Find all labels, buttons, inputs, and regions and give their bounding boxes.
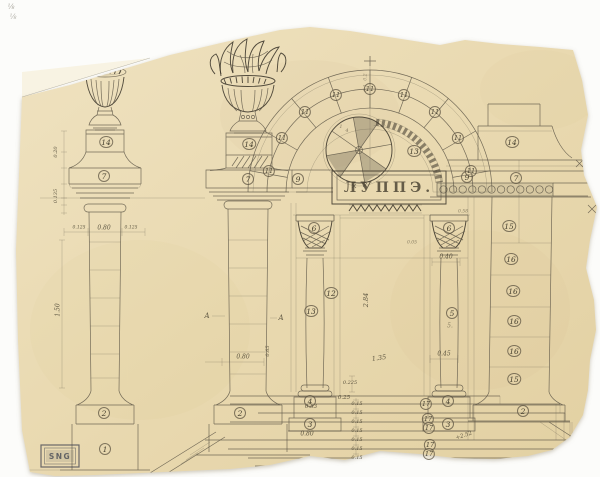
frieze-inscription: ЛУППЭ. — [332, 171, 446, 204]
stamp-text: SNG — [41, 445, 79, 467]
drawing-canvas — [0, 0, 600, 477]
scanned-drawing-page: 1472114729971411111111111111111113661213… — [0, 0, 600, 477]
